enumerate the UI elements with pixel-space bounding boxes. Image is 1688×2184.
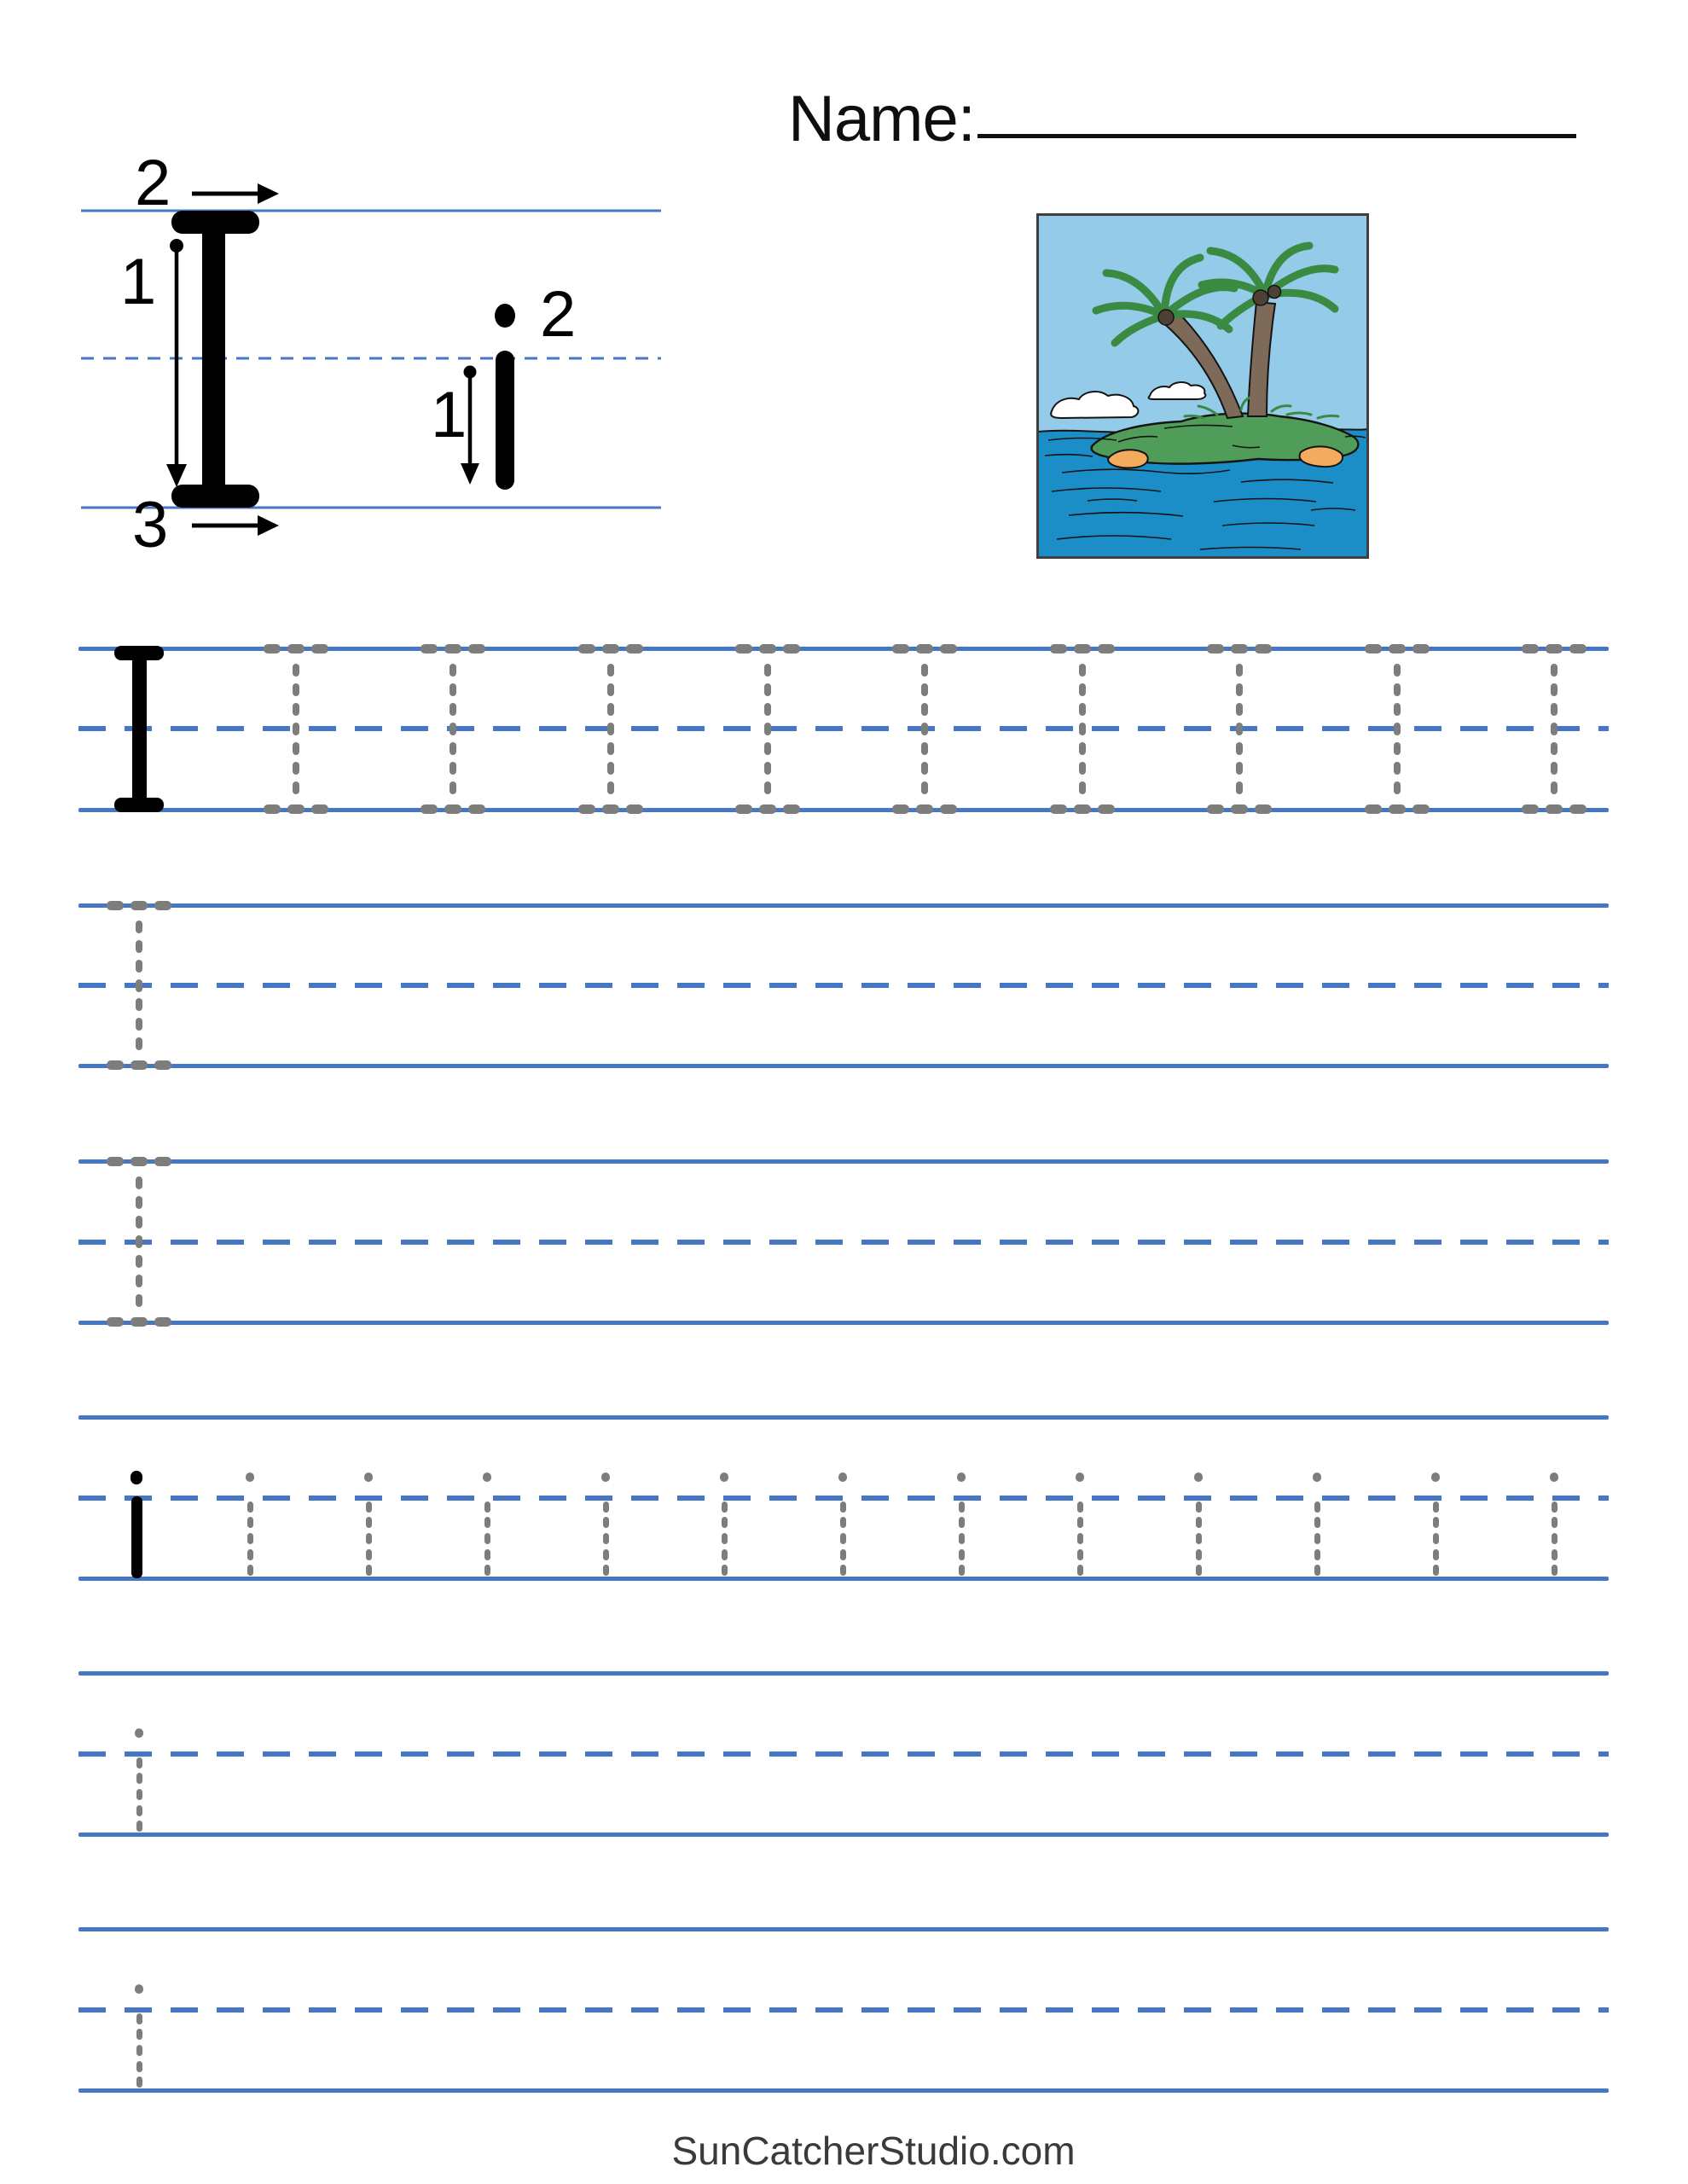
trace-letter-i-dashed — [484, 1517, 490, 1528]
trace-letter-I-dashed — [311, 804, 328, 814]
trace-letter-I-dashed — [764, 703, 771, 716]
trace-letter-i-dashed — [1196, 1565, 1202, 1576]
trace-letter-I-dashed — [136, 979, 142, 992]
trace-letter-i-dashed — [1314, 1501, 1320, 1513]
trace-letter-I-dashed — [1236, 742, 1243, 755]
trace-letter-i-dashed — [1314, 1565, 1320, 1576]
trace-letter-I-dashed — [136, 1196, 142, 1209]
writing-line-bottom — [78, 2088, 1609, 2093]
writing-line-top — [78, 1927, 1609, 1931]
trace-letter-i-dashed — [247, 1517, 253, 1528]
trace-letter-I-dashed — [602, 644, 619, 653]
trace-letter-i-dashed — [136, 1821, 142, 1832]
trace-letter-i-dashed — [959, 1517, 965, 1528]
trace-letter-i-dashed — [1077, 1533, 1083, 1544]
trace-letter-i-solid — [131, 1471, 142, 1484]
trace-letter-I-dashed — [1365, 644, 1382, 653]
lower-stroke-2-label: 2 — [540, 278, 576, 351]
trace-letter-i-dashed — [1433, 1533, 1439, 1544]
trace-letter-I-dashed — [131, 1157, 148, 1166]
trace-letter-i-dashed — [1077, 1565, 1083, 1576]
trace-letter-I-dashed — [1255, 644, 1272, 653]
trace-letter-i-dashed — [484, 1533, 490, 1544]
trace-letter-I-solid — [132, 647, 147, 811]
trace-letter-i-dashed — [1433, 1517, 1439, 1528]
trace-letter-i-dashed — [722, 1533, 728, 1544]
trace-letter-i-dashed — [603, 1533, 609, 1544]
trace-letter-i-dashed — [1196, 1533, 1202, 1544]
trace-letter-i-dashed — [840, 1549, 846, 1560]
trace-letter-I-dashed — [921, 781, 928, 794]
writing-line-middle-dashed — [78, 726, 1609, 731]
trace-letter-I-dashed — [136, 1255, 142, 1268]
trace-letter-I-dashed — [107, 1317, 124, 1327]
name-label: Name: — [788, 82, 975, 156]
trace-letter-I-dashed — [1079, 723, 1086, 735]
trace-letter-i-dashed — [959, 1549, 965, 1560]
trace-letter-I-dashed — [293, 664, 299, 677]
trace-letter-I-dashed — [1394, 683, 1401, 696]
name-write-line — [977, 134, 1576, 138]
trace-letter-i-dashed — [1196, 1549, 1202, 1560]
trace-letter-I-dashed — [1394, 664, 1401, 677]
trace-letter-I-dashed — [450, 664, 456, 677]
trace-letter-I-dashed — [735, 804, 752, 814]
trace-letter-i-dashed — [959, 1565, 965, 1576]
trace-letter-I-dashed — [1546, 644, 1563, 653]
trace-letter-I-dashed — [607, 781, 614, 794]
trace-letter-i-dashed — [1314, 1533, 1320, 1544]
trace-letter-i-dashed — [136, 2013, 142, 2024]
trace-letter-I-dashed — [1079, 781, 1086, 794]
trace-letter-I-dashed — [136, 1216, 142, 1228]
trace-letter-I-dashed — [136, 1294, 142, 1307]
upper-stroke-2-arrow-icon — [192, 183, 279, 204]
trace-letter-i-dashed — [135, 1984, 143, 1994]
trace-letter-i-dashed — [136, 2029, 142, 2040]
trace-letter-i-dashed — [136, 2077, 142, 2088]
trace-letter-I-dashed — [783, 644, 800, 653]
trace-letter-I-dashed — [1236, 664, 1243, 677]
trace-letter-I-dashed — [293, 683, 299, 696]
trace-letter-i-dashed — [838, 1472, 847, 1482]
trace-letter-I-dashed — [1079, 762, 1086, 775]
trace-letter-I-dashed — [607, 723, 614, 735]
trace-letter-I-dashed — [764, 664, 771, 677]
trace-letter-i-dashed — [484, 1549, 490, 1560]
trace-letter-i-dashed — [1552, 1549, 1557, 1560]
writing-line-middle-dashed — [78, 1751, 1609, 1757]
trace-letter-I-dashed — [450, 781, 456, 794]
trace-letter-I-dashed — [921, 664, 928, 677]
trace-letter-i-dashed — [722, 1501, 728, 1513]
trace-letter-i-dashed — [603, 1549, 609, 1560]
trace-letter-i-dashed — [1077, 1549, 1083, 1560]
trace-letter-i-dashed — [603, 1517, 609, 1528]
trace-letter-I-dashed — [578, 804, 595, 814]
trace-letter-i-dashed — [603, 1501, 609, 1513]
upper-stroke-1-arrow-icon — [166, 239, 187, 487]
trace-letter-I-dashed — [293, 703, 299, 716]
trace-letter-I-solid — [114, 798, 164, 812]
trace-letter-i-dashed — [136, 1773, 142, 1784]
trace-letter-i-dashed — [1077, 1517, 1083, 1528]
trace-letter-i-dashed — [484, 1501, 490, 1513]
trace-letter-I-dashed — [783, 804, 800, 814]
trace-letter-i-dashed — [1433, 1565, 1439, 1576]
lowercase-i-glyph — [495, 304, 515, 490]
trace-letter-I-dashed — [1207, 644, 1224, 653]
trace-letter-I-dashed — [136, 921, 142, 933]
trace-letter-I-dashed — [892, 644, 909, 653]
trace-letter-I-dashed — [154, 1060, 171, 1070]
trace-letter-i-dashed — [1077, 1501, 1083, 1513]
trace-letter-i-dashed — [247, 1501, 253, 1513]
trace-letter-I-dashed — [1079, 683, 1086, 696]
trace-letter-I-dashed — [287, 804, 305, 814]
trace-letter-i-dashed — [136, 1757, 142, 1769]
trace-letter-I-dashed — [107, 901, 124, 910]
trace-letter-i-dashed — [722, 1517, 728, 1528]
trace-letter-i-dashed — [1433, 1501, 1439, 1513]
trace-letter-I-dashed — [921, 703, 928, 716]
trace-letter-i-dashed — [722, 1565, 728, 1576]
trace-letter-i-dashed — [366, 1565, 372, 1576]
trace-letter-I-dashed — [1551, 723, 1557, 735]
trace-letter-I-dashed — [1079, 742, 1086, 755]
trace-letter-I-dashed — [602, 804, 619, 814]
trace-letter-i-dashed — [840, 1533, 846, 1544]
trace-letter-i-dashed — [136, 1789, 142, 1800]
trace-letter-i-dashed — [722, 1549, 728, 1560]
trace-letter-I-dashed — [1050, 644, 1067, 653]
trace-letter-I-dashed — [450, 762, 456, 775]
trace-letter-i-dashed — [1194, 1472, 1203, 1482]
trace-letter-i-dashed — [484, 1565, 490, 1576]
trace-letter-I-dashed — [264, 644, 281, 653]
trace-letter-I-dashed — [136, 1037, 142, 1050]
trace-letter-I-dashed — [1412, 644, 1430, 653]
trace-letter-I-dashed — [154, 1157, 171, 1166]
trace-letter-I-dashed — [154, 1317, 171, 1327]
trace-letter-I-dashed — [1394, 762, 1401, 775]
trace-letter-I-dashed — [136, 940, 142, 953]
trace-letter-i-dashed — [366, 1533, 372, 1544]
trace-letter-I-dashed — [131, 1060, 148, 1070]
writing-line-top — [78, 1415, 1609, 1420]
trace-letter-I-dashed — [764, 742, 771, 755]
trace-letter-i-dashed — [957, 1472, 966, 1482]
trace-letter-i-dashed — [1196, 1501, 1202, 1513]
trace-letter-I-dashed — [735, 644, 752, 653]
trace-letter-I-dashed — [1389, 644, 1406, 653]
trace-letter-I-dashed — [1207, 804, 1224, 814]
trace-letter-i-dashed — [1550, 1472, 1558, 1482]
trace-letter-i-dashed — [366, 1549, 372, 1560]
trace-letter-I-dashed — [1074, 644, 1091, 653]
trace-letter-I-dashed — [136, 1176, 142, 1189]
trace-letter-I-solid — [114, 646, 164, 660]
writing-line-bottom — [78, 1833, 1609, 1837]
trace-letter-I-dashed — [921, 742, 928, 755]
trace-letter-i-dashed — [135, 1728, 143, 1738]
trace-letter-i-dashed — [1196, 1517, 1202, 1528]
trace-letter-I-dashed — [468, 644, 485, 653]
trace-letter-I-dashed — [136, 960, 142, 973]
trace-letter-I-dashed — [444, 804, 461, 814]
island-illustration — [1036, 213, 1369, 559]
trace-letter-I-dashed — [1394, 703, 1401, 716]
writing-line-bottom — [78, 1577, 1609, 1581]
stroke-order-guide: 2 1 3 2 1 — [47, 136, 678, 563]
upper-stroke-1-label: 1 — [120, 246, 156, 318]
trace-letter-i-dashed — [840, 1501, 846, 1513]
trace-letter-i-dashed — [1314, 1517, 1320, 1528]
trace-letter-i-dashed — [840, 1565, 846, 1576]
trace-letter-I-dashed — [764, 762, 771, 775]
trace-letter-I-dashed — [1546, 804, 1563, 814]
trace-letter-I-dashed — [1236, 781, 1243, 794]
trace-letter-I-dashed — [136, 1018, 142, 1031]
trace-letter-I-dashed — [1394, 742, 1401, 755]
trace-letter-I-dashed — [1551, 703, 1557, 716]
trace-letter-I-dashed — [131, 1317, 148, 1327]
trace-letter-I-dashed — [450, 683, 456, 696]
trace-letter-i-dashed — [136, 1805, 142, 1816]
trace-letter-I-dashed — [1236, 723, 1243, 735]
trace-letter-I-dashed — [921, 762, 928, 775]
footer-branding: SunCatcherStudio.com — [0, 2128, 1688, 2174]
upper-stroke-2-label: 2 — [135, 147, 171, 219]
upper-stroke-3-label: 3 — [132, 489, 168, 561]
trace-letter-I-dashed — [293, 742, 299, 755]
trace-letter-I-dashed — [287, 644, 305, 653]
trace-letter-I-dashed — [136, 998, 142, 1011]
trace-letter-I-dashed — [468, 804, 485, 814]
trace-letter-I-dashed — [764, 781, 771, 794]
trace-letter-I-dashed — [1365, 804, 1382, 814]
trace-letter-I-dashed — [1231, 804, 1248, 814]
trace-letter-I-dashed — [421, 644, 438, 653]
writing-line-top — [78, 1671, 1609, 1676]
trace-letter-I-dashed — [1394, 781, 1401, 794]
trace-letter-i-dashed — [1552, 1517, 1557, 1528]
writing-line-top — [78, 1159, 1609, 1164]
trace-letter-i-dashed — [1076, 1472, 1084, 1482]
trace-letter-I-dashed — [1569, 804, 1586, 814]
trace-letter-I-dashed — [1074, 804, 1091, 814]
trace-letter-I-dashed — [759, 644, 776, 653]
trace-letter-i-dashed — [720, 1472, 728, 1482]
trace-letter-i-dashed — [136, 2045, 142, 2056]
trace-letter-i-dashed — [840, 1517, 846, 1528]
writing-line-bottom — [78, 1321, 1609, 1325]
trace-letter-i-dashed — [1314, 1549, 1320, 1560]
trace-letter-i-dashed — [366, 1501, 372, 1513]
trace-letter-I-dashed — [450, 742, 456, 755]
trace-letter-i-solid — [131, 1496, 142, 1578]
trace-letter-i-dashed — [364, 1472, 373, 1482]
trace-letter-I-dashed — [450, 723, 456, 735]
trace-letter-i-dashed — [1313, 1472, 1321, 1482]
writing-line-middle-dashed — [78, 1240, 1609, 1245]
trace-letter-I-dashed — [916, 804, 933, 814]
trace-letter-i-dashed — [1552, 1565, 1557, 1576]
trace-letter-i-dashed — [1552, 1501, 1557, 1513]
trace-letter-I-dashed — [1050, 804, 1067, 814]
trace-letter-I-dashed — [154, 901, 171, 910]
trace-letter-I-dashed — [1551, 762, 1557, 775]
trace-letter-i-dashed — [366, 1517, 372, 1528]
trace-letter-I-dashed — [1569, 644, 1586, 653]
trace-letter-i-dashed — [247, 1565, 253, 1576]
writing-line-middle-dashed — [78, 2007, 1609, 2013]
trace-letter-I-dashed — [1236, 703, 1243, 716]
trace-letter-I-dashed — [107, 1157, 124, 1166]
trace-letter-I-dashed — [1231, 644, 1248, 653]
trace-letter-i-dashed — [1433, 1549, 1439, 1560]
trace-letter-I-dashed — [136, 1235, 142, 1248]
trace-letter-I-dashed — [131, 901, 148, 910]
upper-stroke-3-arrow-icon — [192, 515, 279, 536]
trace-letter-I-dashed — [764, 723, 771, 735]
trace-letter-I-dashed — [607, 683, 614, 696]
trace-letter-I-dashed — [1522, 644, 1539, 653]
trace-letter-I-dashed — [940, 804, 957, 814]
trace-letter-I-dashed — [578, 644, 595, 653]
worksheet-page: Name: 2 1 3 — [0, 0, 1688, 2184]
trace-letter-i-dashed — [246, 1472, 254, 1482]
trace-letter-I-dashed — [444, 644, 461, 653]
trace-letter-i-dashed — [247, 1533, 253, 1544]
trace-letter-I-dashed — [1551, 781, 1557, 794]
lower-stroke-1-label: 1 — [431, 379, 467, 451]
trace-letter-i-dashed — [959, 1533, 965, 1544]
trace-letter-I-dashed — [264, 804, 281, 814]
trace-letter-I-dashed — [1079, 664, 1086, 677]
trace-letter-I-dashed — [136, 1275, 142, 1287]
writing-line-bottom — [78, 1064, 1609, 1068]
trace-letter-I-dashed — [293, 762, 299, 775]
trace-letter-I-dashed — [107, 1060, 124, 1070]
trace-letter-I-dashed — [916, 644, 933, 653]
trace-letter-I-dashed — [1236, 762, 1243, 775]
trace-letter-I-dashed — [1098, 644, 1115, 653]
trace-letter-I-dashed — [626, 804, 643, 814]
trace-letter-I-dashed — [1551, 742, 1557, 755]
trace-letter-I-dashed — [421, 804, 438, 814]
trace-letter-i-dashed — [1552, 1533, 1557, 1544]
trace-letter-I-dashed — [921, 683, 928, 696]
trace-letter-I-dashed — [1255, 804, 1272, 814]
trace-letter-I-dashed — [1551, 683, 1557, 696]
trace-letter-i-dashed — [959, 1501, 965, 1513]
trace-letter-I-dashed — [1236, 683, 1243, 696]
trace-letter-I-dashed — [1098, 804, 1115, 814]
trace-letter-i-dashed — [483, 1472, 491, 1482]
trace-letter-I-dashed — [450, 703, 456, 716]
trace-letter-I-dashed — [607, 664, 614, 677]
trace-letter-i-dashed — [1431, 1472, 1440, 1482]
trace-letter-I-dashed — [1394, 723, 1401, 735]
trace-letter-I-dashed — [607, 742, 614, 755]
trace-letter-I-dashed — [764, 683, 771, 696]
writing-line-top — [78, 903, 1609, 908]
trace-letter-I-dashed — [293, 723, 299, 735]
trace-letter-I-dashed — [1522, 804, 1539, 814]
writing-line-middle-dashed — [78, 983, 1609, 988]
trace-letter-I-dashed — [607, 762, 614, 775]
trace-letter-I-dashed — [1389, 804, 1406, 814]
trace-letter-I-dashed — [940, 644, 957, 653]
trace-letter-I-dashed — [892, 804, 909, 814]
trace-letter-I-dashed — [626, 644, 643, 653]
trace-letter-i-dashed — [601, 1472, 610, 1482]
trace-letter-I-dashed — [759, 804, 776, 814]
trace-letter-I-dashed — [921, 723, 928, 735]
writing-line-middle-dashed — [78, 1496, 1609, 1501]
trace-letter-I-dashed — [1079, 703, 1086, 716]
trace-letter-I-dashed — [1551, 664, 1557, 677]
trace-letter-i-dashed — [247, 1549, 253, 1560]
trace-letter-I-dashed — [311, 644, 328, 653]
trace-letter-I-dashed — [607, 703, 614, 716]
trace-letter-I-dashed — [1412, 804, 1430, 814]
trace-letter-i-dashed — [603, 1565, 609, 1576]
trace-letter-i-dashed — [136, 2061, 142, 2072]
trace-letter-I-dashed — [293, 781, 299, 794]
